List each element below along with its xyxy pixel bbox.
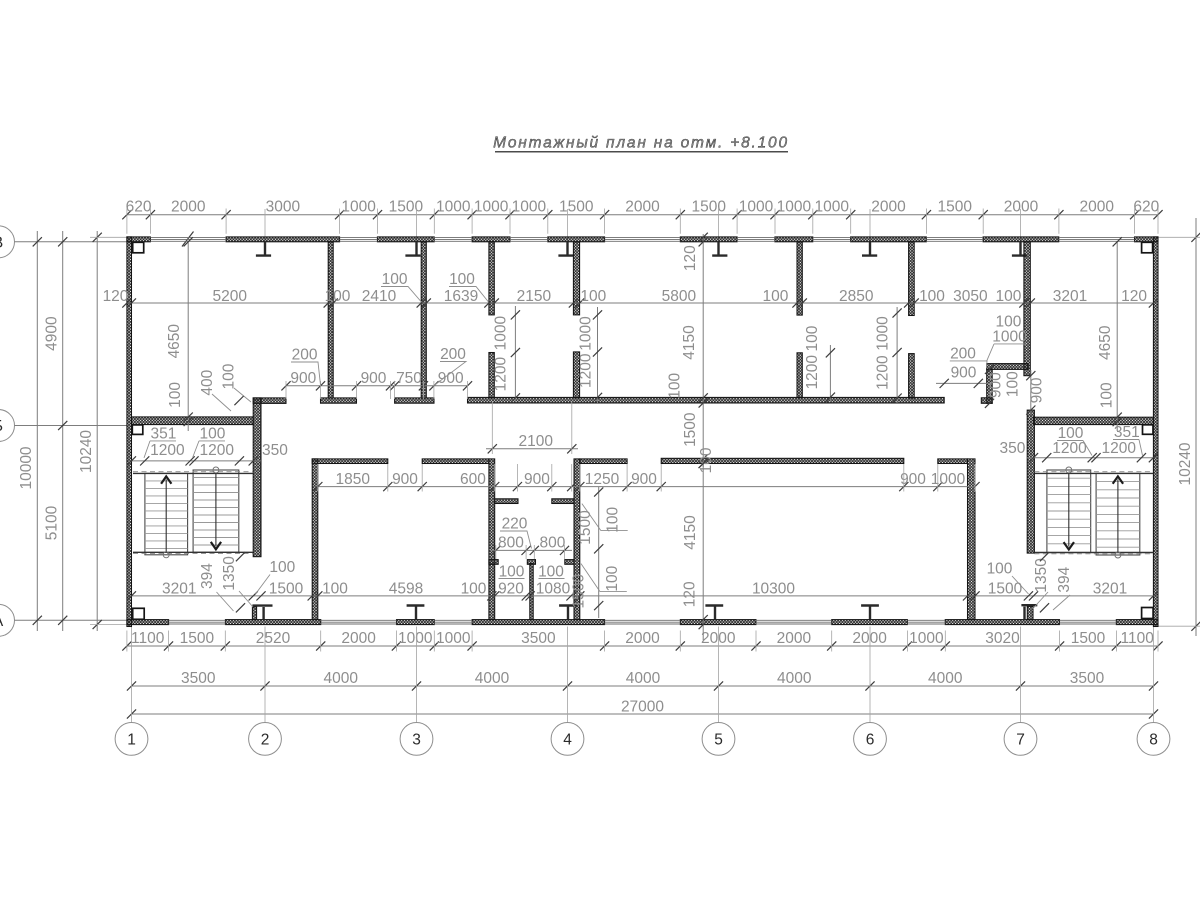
svg-text:620: 620 bbox=[1133, 199, 1159, 216]
svg-text:1000: 1000 bbox=[875, 316, 892, 351]
svg-text:2000: 2000 bbox=[625, 199, 660, 216]
svg-text:5100: 5100 bbox=[44, 505, 61, 540]
svg-text:4150: 4150 bbox=[682, 515, 699, 550]
svg-text:4000: 4000 bbox=[324, 670, 359, 687]
svg-text:1500: 1500 bbox=[389, 199, 424, 216]
svg-text:1000: 1000 bbox=[341, 199, 376, 216]
svg-text:100: 100 bbox=[580, 288, 606, 305]
svg-text:1200: 1200 bbox=[199, 442, 234, 459]
svg-text:5: 5 bbox=[714, 731, 723, 748]
svg-text:4598: 4598 bbox=[389, 581, 423, 598]
svg-text:1000: 1000 bbox=[493, 315, 510, 350]
svg-text:900: 900 bbox=[631, 471, 657, 488]
svg-text:100: 100 bbox=[995, 288, 1021, 305]
svg-text:100: 100 bbox=[919, 288, 945, 305]
svg-text:1500: 1500 bbox=[559, 199, 594, 216]
svg-text:2410: 2410 bbox=[362, 288, 397, 305]
svg-text:В: В bbox=[0, 234, 3, 251]
svg-text:100: 100 bbox=[1004, 371, 1021, 397]
svg-text:4000: 4000 bbox=[928, 670, 963, 687]
svg-text:4000: 4000 bbox=[475, 670, 510, 687]
svg-text:1250: 1250 bbox=[585, 471, 620, 488]
svg-text:900: 900 bbox=[361, 370, 387, 387]
svg-text:800: 800 bbox=[498, 534, 524, 551]
svg-text:1000: 1000 bbox=[992, 328, 1027, 345]
svg-text:394: 394 bbox=[199, 563, 216, 589]
svg-text:1350: 1350 bbox=[221, 556, 238, 591]
svg-text:1200: 1200 bbox=[493, 356, 510, 391]
svg-text:620: 620 bbox=[126, 199, 152, 216]
svg-text:1500: 1500 bbox=[577, 510, 594, 545]
svg-text:2000: 2000 bbox=[1004, 199, 1039, 216]
svg-text:10300: 10300 bbox=[752, 581, 795, 598]
svg-text:1200: 1200 bbox=[875, 355, 892, 390]
svg-text:1200: 1200 bbox=[150, 442, 185, 459]
svg-text:4000: 4000 bbox=[626, 670, 661, 687]
svg-text:2000: 2000 bbox=[777, 630, 812, 647]
svg-text:2000: 2000 bbox=[871, 199, 906, 216]
svg-text:3201: 3201 bbox=[162, 581, 196, 598]
svg-text:3020: 3020 bbox=[985, 630, 1020, 647]
svg-text:220: 220 bbox=[502, 515, 528, 532]
svg-text:1200: 1200 bbox=[577, 353, 594, 388]
svg-text:394: 394 bbox=[1056, 566, 1073, 592]
svg-text:900: 900 bbox=[951, 365, 977, 382]
svg-text:1100: 1100 bbox=[1121, 630, 1155, 647]
svg-text:120: 120 bbox=[682, 581, 699, 607]
svg-text:900: 900 bbox=[392, 471, 418, 488]
svg-text:100: 100 bbox=[666, 372, 683, 398]
svg-text:120: 120 bbox=[682, 245, 699, 271]
svg-text:1350: 1350 bbox=[1033, 558, 1050, 593]
svg-text:4000: 4000 bbox=[777, 670, 812, 687]
svg-text:100: 100 bbox=[382, 271, 408, 288]
svg-text:900: 900 bbox=[290, 370, 316, 387]
svg-text:120: 120 bbox=[103, 288, 129, 305]
svg-text:10000: 10000 bbox=[18, 446, 35, 489]
svg-text:2100: 2100 bbox=[519, 433, 554, 450]
svg-text:100: 100 bbox=[538, 564, 564, 581]
svg-text:8: 8 bbox=[1149, 731, 1158, 748]
svg-text:10240: 10240 bbox=[1177, 442, 1194, 485]
svg-text:7: 7 bbox=[1016, 731, 1025, 748]
svg-text:100: 100 bbox=[604, 565, 621, 591]
svg-text:2: 2 bbox=[261, 731, 270, 748]
svg-text:2000: 2000 bbox=[1079, 199, 1114, 216]
svg-text:Монтажный план на отм. +8.100: Монтажный план на отм. +8.100 bbox=[493, 135, 789, 152]
svg-text:1000: 1000 bbox=[474, 199, 509, 216]
svg-text:2850: 2850 bbox=[839, 288, 874, 305]
svg-text:100: 100 bbox=[987, 561, 1013, 578]
svg-text:200: 200 bbox=[950, 346, 976, 363]
svg-text:27000: 27000 bbox=[621, 699, 664, 716]
svg-text:1200: 1200 bbox=[804, 355, 821, 390]
svg-text:1000: 1000 bbox=[739, 199, 774, 216]
svg-text:1500: 1500 bbox=[570, 574, 587, 609]
svg-text:1500: 1500 bbox=[1071, 630, 1106, 647]
svg-text:5200: 5200 bbox=[213, 288, 248, 305]
svg-text:900: 900 bbox=[987, 372, 1004, 398]
svg-text:1080: 1080 bbox=[536, 581, 571, 598]
svg-text:2000: 2000 bbox=[341, 630, 376, 647]
svg-text:5800: 5800 bbox=[662, 288, 697, 305]
svg-text:2000: 2000 bbox=[625, 630, 660, 647]
svg-text:200: 200 bbox=[440, 346, 466, 363]
svg-text:351: 351 bbox=[1114, 424, 1140, 441]
svg-text:1000: 1000 bbox=[436, 630, 471, 647]
svg-text:350: 350 bbox=[999, 440, 1025, 457]
svg-text:920: 920 bbox=[498, 581, 524, 598]
svg-text:4650: 4650 bbox=[166, 324, 183, 359]
svg-text:100: 100 bbox=[604, 506, 621, 532]
svg-text:3201: 3201 bbox=[1093, 581, 1127, 598]
svg-text:1639: 1639 bbox=[444, 288, 478, 305]
svg-text:600: 600 bbox=[460, 471, 486, 488]
svg-text:100: 100 bbox=[325, 288, 351, 305]
svg-text:3500: 3500 bbox=[1070, 670, 1105, 687]
svg-text:1500: 1500 bbox=[269, 581, 304, 598]
svg-text:1000: 1000 bbox=[777, 199, 812, 216]
svg-text:2520: 2520 bbox=[256, 630, 291, 647]
svg-text:100: 100 bbox=[269, 559, 295, 576]
svg-text:2150: 2150 bbox=[517, 288, 552, 305]
svg-text:1500: 1500 bbox=[691, 199, 726, 216]
svg-text:3050: 3050 bbox=[953, 288, 988, 305]
svg-text:100: 100 bbox=[804, 325, 821, 351]
svg-text:1000: 1000 bbox=[436, 199, 471, 216]
svg-text:3201: 3201 bbox=[1053, 288, 1087, 305]
svg-text:4650: 4650 bbox=[1097, 325, 1114, 360]
svg-text:4150: 4150 bbox=[681, 325, 698, 360]
svg-text:1500: 1500 bbox=[988, 581, 1023, 598]
svg-text:1000: 1000 bbox=[577, 316, 594, 351]
svg-text:4900: 4900 bbox=[44, 316, 61, 351]
svg-text:6: 6 bbox=[866, 731, 875, 748]
svg-text:100: 100 bbox=[220, 363, 237, 389]
svg-text:1500: 1500 bbox=[938, 199, 973, 216]
svg-text:750: 750 bbox=[396, 370, 422, 387]
svg-text:1: 1 bbox=[127, 731, 136, 748]
svg-text:400: 400 bbox=[199, 369, 216, 395]
svg-text:1000: 1000 bbox=[398, 630, 433, 647]
svg-text:350: 350 bbox=[262, 442, 288, 459]
svg-text:3500: 3500 bbox=[521, 630, 556, 647]
svg-text:Б: Б bbox=[0, 418, 3, 435]
svg-text:100: 100 bbox=[1098, 382, 1115, 408]
svg-text:3: 3 bbox=[412, 731, 421, 748]
svg-text:100: 100 bbox=[449, 271, 475, 288]
svg-text:1000: 1000 bbox=[909, 630, 944, 647]
svg-text:1000: 1000 bbox=[814, 199, 849, 216]
svg-text:351: 351 bbox=[150, 425, 176, 442]
svg-text:1200: 1200 bbox=[1052, 440, 1087, 457]
svg-text:120: 120 bbox=[1121, 288, 1147, 305]
svg-text:1500: 1500 bbox=[180, 630, 215, 647]
svg-text:1000: 1000 bbox=[931, 471, 966, 488]
svg-text:100: 100 bbox=[322, 581, 348, 598]
svg-text:3000: 3000 bbox=[266, 199, 301, 216]
svg-text:200: 200 bbox=[292, 347, 318, 364]
svg-text:100: 100 bbox=[167, 382, 184, 408]
svg-text:100: 100 bbox=[499, 564, 525, 581]
svg-text:800: 800 bbox=[539, 534, 565, 551]
svg-text:100: 100 bbox=[199, 425, 225, 442]
svg-text:4: 4 bbox=[563, 731, 572, 748]
svg-text:1850: 1850 bbox=[336, 471, 371, 488]
svg-text:1100: 1100 bbox=[131, 630, 165, 647]
svg-text:100: 100 bbox=[762, 288, 788, 305]
svg-text:1500: 1500 bbox=[682, 412, 699, 447]
svg-text:10240: 10240 bbox=[78, 430, 95, 473]
svg-text:1000: 1000 bbox=[512, 199, 547, 216]
svg-text:900: 900 bbox=[524, 471, 550, 488]
svg-text:100: 100 bbox=[461, 581, 487, 598]
svg-text:900: 900 bbox=[1029, 377, 1046, 403]
svg-text:1200: 1200 bbox=[1101, 440, 1136, 457]
svg-text:3500: 3500 bbox=[181, 670, 216, 687]
svg-text:2000: 2000 bbox=[171, 199, 206, 216]
